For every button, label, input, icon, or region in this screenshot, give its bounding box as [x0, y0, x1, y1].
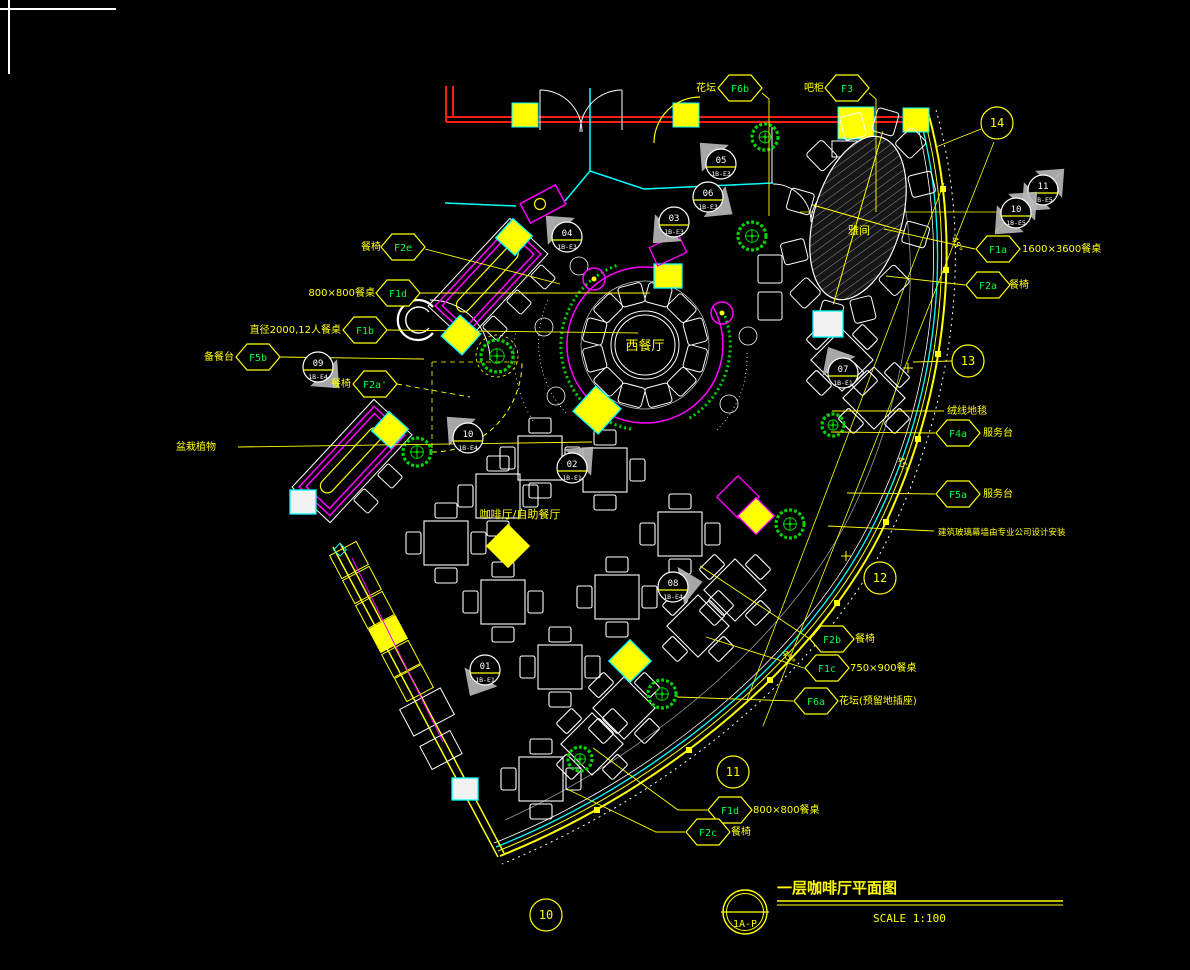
elevation-marker-10[interactable]: 101B-E4: [433, 403, 483, 453]
marker-code: 1B-E1: [475, 676, 495, 684]
cad-text: 直径2000,12人餐桌: [250, 323, 341, 336]
marker-number: 04: [562, 229, 573, 239]
cad-canvas[interactable]: F6bF3F2eF1dF1bF5bF2a'F1aF2aF4aF5aF2bF1cF…: [0, 0, 1190, 970]
marker-code: 1B-E5: [1006, 219, 1026, 227]
mullion[interactable]: [767, 677, 773, 683]
chair[interactable]: [666, 293, 697, 324]
hex-label-F1c[interactable]: F1c: [805, 655, 849, 681]
sheet-border: [0, 0, 116, 74]
hex-label-code: F1a: [989, 245, 1007, 256]
chair[interactable]: [582, 344, 608, 372]
table-4-seat[interactable]: [458, 456, 538, 536]
sheet-number: 1A-P: [733, 919, 757, 930]
plant-icon[interactable]: [738, 222, 766, 250]
marker-number: 03: [669, 214, 680, 224]
elevation-marker-08[interactable]: 081B-E4: [658, 563, 706, 604]
hex-label-F2a[interactable]: F2a: [966, 272, 1010, 298]
stair-stringer-magenta[interactable]: [352, 558, 443, 742]
plant-icon[interactable]: [481, 340, 513, 372]
cad-text: 服务台: [983, 426, 1013, 439]
leader-line: [886, 276, 965, 285]
hex-label-F3[interactable]: F3: [825, 75, 869, 101]
hex-label-code: F5a: [949, 490, 967, 501]
grid-bubble-12[interactable]: 12: [864, 562, 896, 594]
hex-label-code: F4a: [949, 429, 967, 440]
wall-chairs[interactable]: [758, 255, 782, 320]
marker-code: 1B-E1: [833, 379, 853, 387]
table-4-seat[interactable]: [406, 503, 486, 583]
table-4-seat[interactable]: [501, 739, 581, 819]
hex-label-code: F6b: [731, 84, 749, 95]
grid-bubble-number: 13: [961, 354, 975, 368]
grid-bubble-number: 11: [726, 765, 740, 779]
marker-number: 09: [313, 359, 324, 369]
marker-code: 1B-E3: [711, 170, 731, 178]
column-circle[interactable]: [535, 199, 546, 210]
plant-icon[interactable]: [648, 680, 676, 708]
chair[interactable]: [617, 382, 645, 408]
marker-number: 01: [480, 662, 491, 672]
marker-code: 1B-E1: [562, 474, 582, 482]
chair[interactable]: [682, 317, 708, 345]
table-4-seat[interactable]: [520, 627, 600, 707]
hex-label-F1d[interactable]: F1d: [376, 280, 420, 306]
hex-label-F1b[interactable]: F1b: [343, 317, 387, 343]
leader-line: [762, 93, 769, 216]
title-block: 1A-P 一层咖啡厅平面图 SCALE 1:100: [721, 879, 1063, 934]
counter-a-chairs[interactable]: [482, 264, 556, 340]
hex-label-F5b[interactable]: F5b: [236, 344, 280, 370]
hex-label-code: F1b: [356, 326, 374, 337]
marker-code: 1B-E3: [664, 228, 684, 236]
grid-bubble-number: 12: [873, 571, 887, 585]
hex-label-F6a[interactable]: F6a: [794, 688, 838, 714]
mullion[interactable]: [915, 436, 921, 442]
chair[interactable]: [593, 293, 624, 324]
cad-text: 800×800餐桌: [753, 803, 820, 816]
chair[interactable]: [780, 238, 809, 265]
chair[interactable]: [644, 382, 672, 408]
stair-step[interactable]: [369, 615, 408, 652]
grid-bubble-number: 10: [539, 908, 553, 922]
marker-number: 02: [567, 460, 578, 470]
marker-number: 08: [668, 579, 679, 589]
chair[interactable]: [901, 221, 930, 249]
plant-icon[interactable]: [752, 124, 778, 150]
buffet-counter-a[interactable]: [428, 218, 556, 341]
chair[interactable]: [582, 317, 608, 345]
cad-text: 咖啡厅/自助餐厅: [480, 507, 561, 521]
hex-label-code: F2a: [979, 281, 997, 292]
cad-text: 餐椅: [731, 825, 751, 838]
elevation-marker-05[interactable]: 051B-E3: [686, 129, 736, 179]
hex-label-code: F1c: [818, 664, 836, 675]
table-4-seat[interactable]: [640, 494, 720, 574]
grid-bubble-number: 14: [990, 116, 1004, 130]
hex-label-code: F2c: [699, 828, 717, 839]
mullion[interactable]: [834, 600, 840, 606]
elevation-marker-09[interactable]: 091B-E4: [303, 352, 353, 402]
hex-label-code: F6a: [807, 697, 825, 708]
cad-text: 吧柜: [804, 81, 824, 94]
elevation-marker-03[interactable]: 031B-E3: [639, 207, 689, 257]
mullion[interactable]: [594, 807, 600, 813]
plant-icon[interactable]: [403, 438, 431, 466]
leader-line: [397, 384, 470, 397]
marker-number: 06: [703, 189, 714, 199]
marker-code: 1B-E3: [557, 243, 577, 251]
marker-code: 1B-E4: [458, 444, 478, 452]
chair[interactable]: [682, 344, 708, 372]
hex-label-F4a[interactable]: F4a: [936, 420, 980, 446]
landing[interactable]: [400, 688, 455, 736]
leader-line: [913, 361, 952, 362]
leader-line: [936, 129, 981, 147]
elevation-marker-01[interactable]: 011B-E1: [454, 655, 500, 705]
hex-label-code: F1d: [389, 289, 407, 300]
grid-bubble-14[interactable]: 14: [981, 107, 1013, 139]
cad-text: 餐椅: [331, 377, 351, 390]
cad-text: 盆栽植物: [176, 440, 216, 453]
drawing-title: 一层咖啡厅平面图: [777, 879, 897, 897]
cad-text: 建筑玻璃幕墙由专业公司设计安装: [938, 527, 1066, 538]
cad-text: 服务台: [983, 487, 1013, 500]
elevation-marker-07[interactable]: 071B-E1: [812, 338, 858, 388]
table-4-seat[interactable]: [577, 557, 657, 637]
marker-number: 11: [1038, 182, 1049, 192]
drawing-scale: SCALE 1:100: [873, 912, 946, 925]
elevation-marker-06[interactable]: 061B-E3: [693, 182, 743, 230]
marker-code: 1B-E3: [698, 203, 718, 211]
hex-label-F1a[interactable]: F1a: [976, 236, 1020, 262]
cad-text: 绒线地毯: [947, 404, 987, 417]
hex-label-code: F1d: [721, 806, 739, 817]
cad-text: 西餐厅: [625, 338, 664, 354]
cad-text: 餐椅: [855, 632, 875, 645]
cad-viewport: F6bF3F2eF1dF1bF5bF2a'F1aF2aF4aF5aF2bF1cF…: [0, 0, 1190, 970]
planting-arc[interactable]: [688, 316, 730, 419]
marker-number: 10: [1011, 205, 1022, 215]
marker-number: 05: [716, 156, 727, 166]
marker-code: 1B-E4: [663, 593, 683, 601]
mullion[interactable]: [935, 351, 941, 357]
chair[interactable]: [786, 188, 815, 216]
hex-label-F2e[interactable]: F2e: [381, 234, 425, 260]
chair[interactable]: [849, 295, 876, 324]
hex-label-F2a'[interactable]: F2a': [353, 371, 397, 397]
hex-label-code: F2a': [363, 380, 387, 391]
marker-number: 10: [463, 430, 474, 440]
plant-icon[interactable]: [776, 510, 804, 538]
grid-bubble-13[interactable]: 13: [952, 345, 984, 377]
table-4-seat[interactable]: [463, 562, 543, 642]
hex-label-code: F3: [841, 84, 853, 95]
hex-label-code: F2e: [394, 243, 412, 254]
plant-icon[interactable]: [822, 414, 844, 436]
leader-line: [280, 357, 424, 359]
hex-label-code: F2b: [823, 635, 841, 646]
hex-label-code: F5b: [249, 353, 267, 364]
chair[interactable]: [907, 171, 936, 198]
marker-code: 1B-E4: [308, 373, 328, 381]
cad-text: 800×800餐桌: [308, 286, 375, 299]
cad-text: 餐椅: [361, 240, 381, 253]
cad-text: 花坛(预留地插座): [839, 694, 917, 707]
grid-bubble-11[interactable]: 11: [717, 756, 749, 788]
cad-text: 花坛: [696, 81, 716, 94]
cad-text: 雅间: [848, 223, 870, 237]
annotations[interactable]: F6bF3F2eF1dF1bF5bF2a'F1aF2aF4aF5aF2bF1cF…: [236, 75, 1078, 931]
chair[interactable]: [666, 366, 697, 397]
mullion[interactable]: [686, 747, 692, 753]
cad-text: 备餐台: [204, 350, 234, 363]
marker-number: 07: [838, 365, 849, 375]
hex-label-F5a[interactable]: F5a: [936, 481, 980, 507]
chair[interactable]: [617, 282, 645, 308]
grid-bubble-10[interactable]: 10: [530, 899, 562, 931]
cad-text: 750×900餐桌: [850, 661, 917, 674]
mullion[interactable]: [883, 519, 889, 525]
cad-text: 餐椅: [1009, 278, 1029, 291]
elevation-marker-02[interactable]: 021B-E1: [557, 433, 607, 483]
cad-text: 1600×3600餐桌: [1022, 242, 1101, 255]
hex-label-F6b[interactable]: F6b: [718, 75, 762, 101]
